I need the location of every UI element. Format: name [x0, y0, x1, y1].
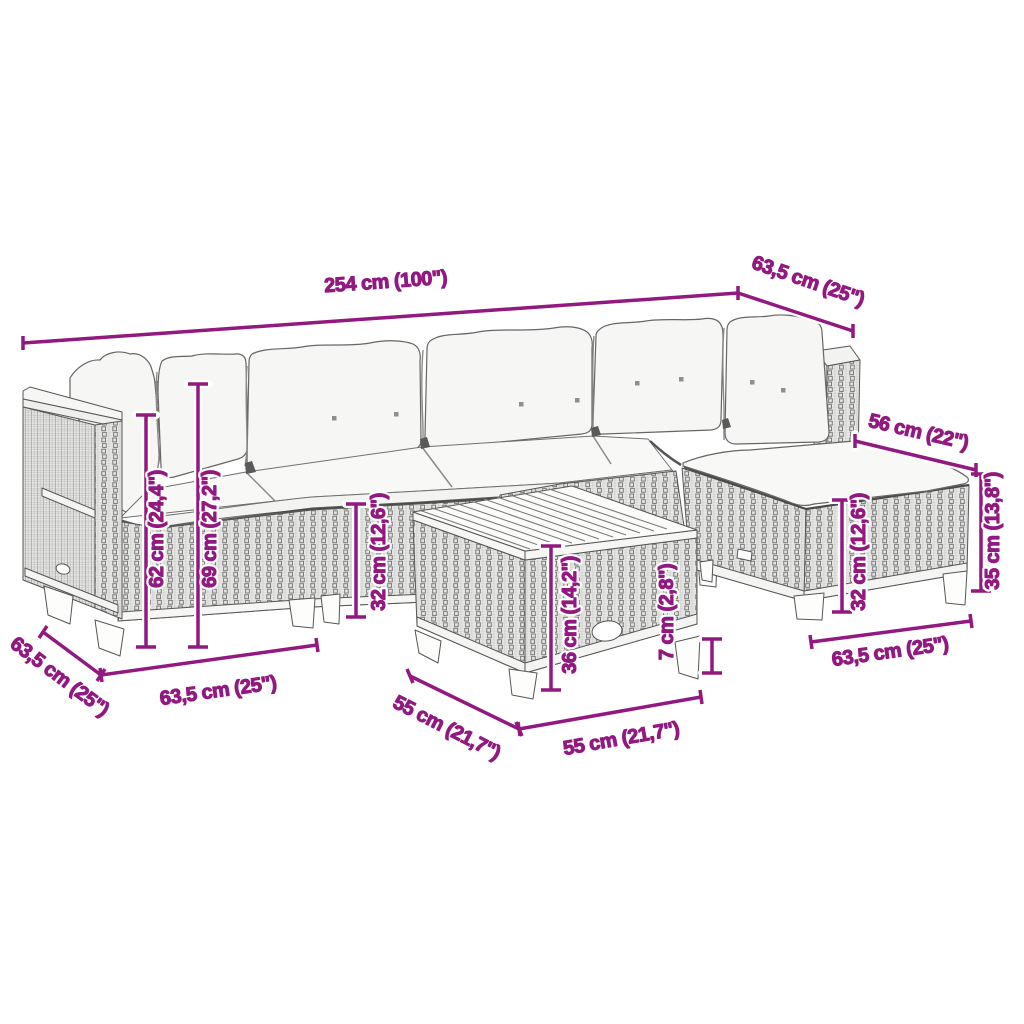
- svg-text:35 cm (13,8"): 35 cm (13,8"): [982, 472, 1004, 590]
- svg-text:62 cm (24,4"): 62 cm (24,4"): [146, 470, 168, 588]
- svg-text:32 cm (12,6"): 32 cm (12,6"): [848, 493, 870, 611]
- svg-text:7 cm (2,8"): 7 cm (2,8"): [656, 564, 678, 660]
- svg-text:69 cm (27,2"): 69 cm (27,2"): [199, 470, 221, 588]
- svg-text:36 cm (14,2"): 36 cm (14,2"): [559, 556, 581, 674]
- svg-text:32 cm (12,6"): 32 cm (12,6"): [368, 493, 390, 611]
